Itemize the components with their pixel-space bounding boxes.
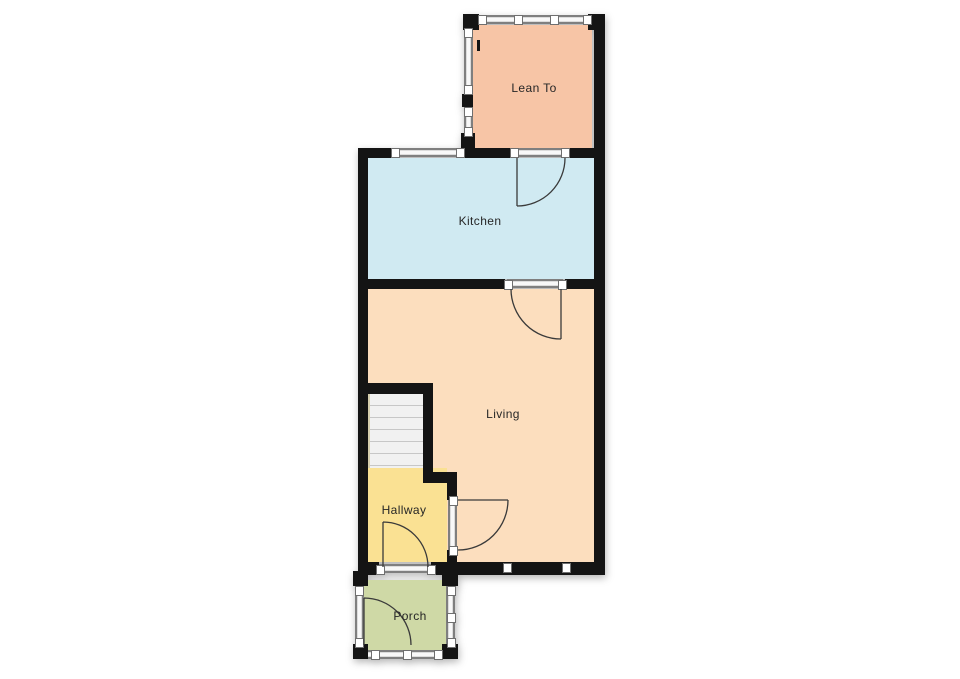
room-label-lean-to: Lean To xyxy=(511,81,556,95)
door-hallway-living xyxy=(458,500,508,550)
floorplan-canvas: Lean To Kitchen Living Hallway Porch xyxy=(0,0,960,679)
door-kitchen-living xyxy=(511,289,561,339)
door-lean-to-kitchen xyxy=(517,158,565,206)
room-label-kitchen: Kitchen xyxy=(459,214,502,228)
room-label-porch: Porch xyxy=(393,609,426,623)
room-label-hallway: Hallway xyxy=(382,503,427,517)
door-swing-layer xyxy=(0,0,960,679)
floor-plan: Lean To Kitchen Living Hallway Porch xyxy=(0,0,960,679)
room-label-living: Living xyxy=(486,407,520,421)
door-porch-hallway xyxy=(383,522,428,567)
